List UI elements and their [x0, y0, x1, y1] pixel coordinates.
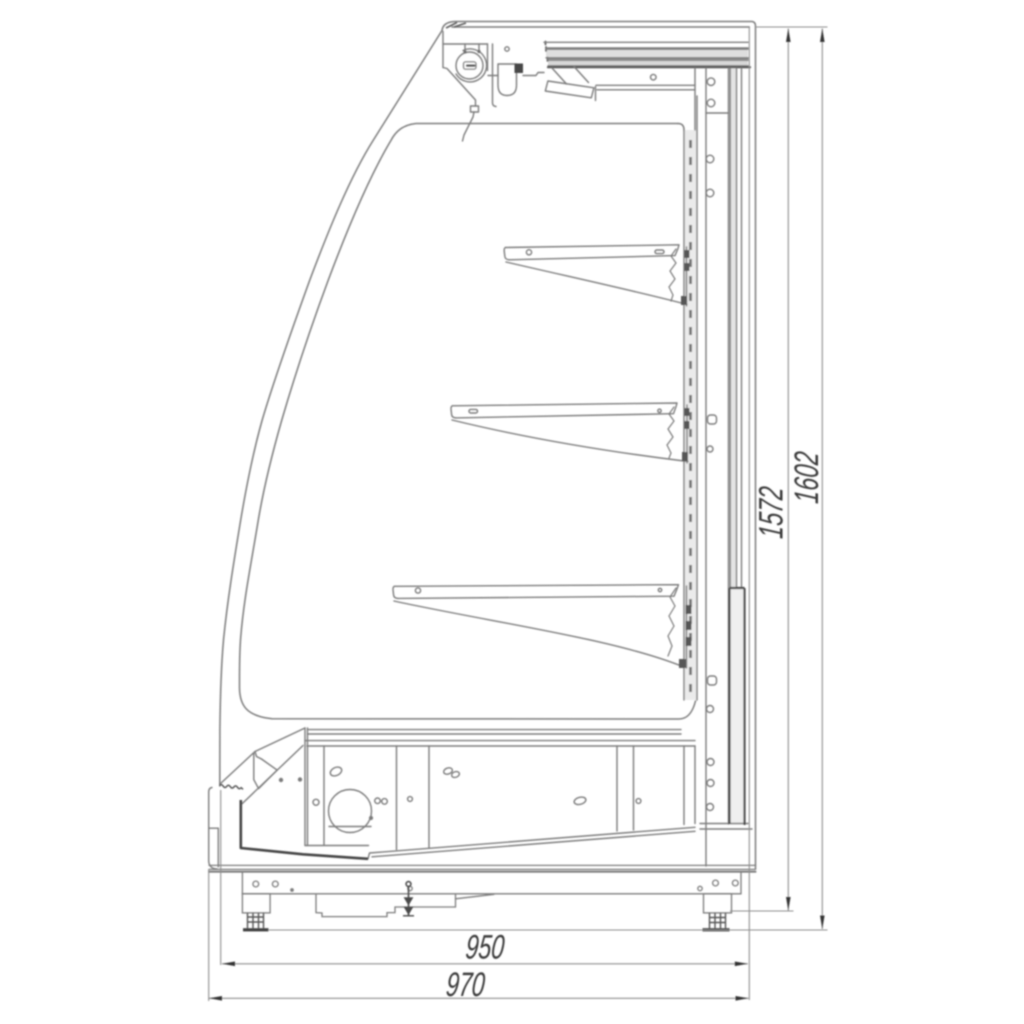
svg-text:1602: 1602 [789, 450, 826, 505]
svg-text:1572: 1572 [753, 485, 790, 540]
svg-text:970: 970 [444, 967, 486, 1004]
svg-text:950: 950 [464, 929, 506, 966]
